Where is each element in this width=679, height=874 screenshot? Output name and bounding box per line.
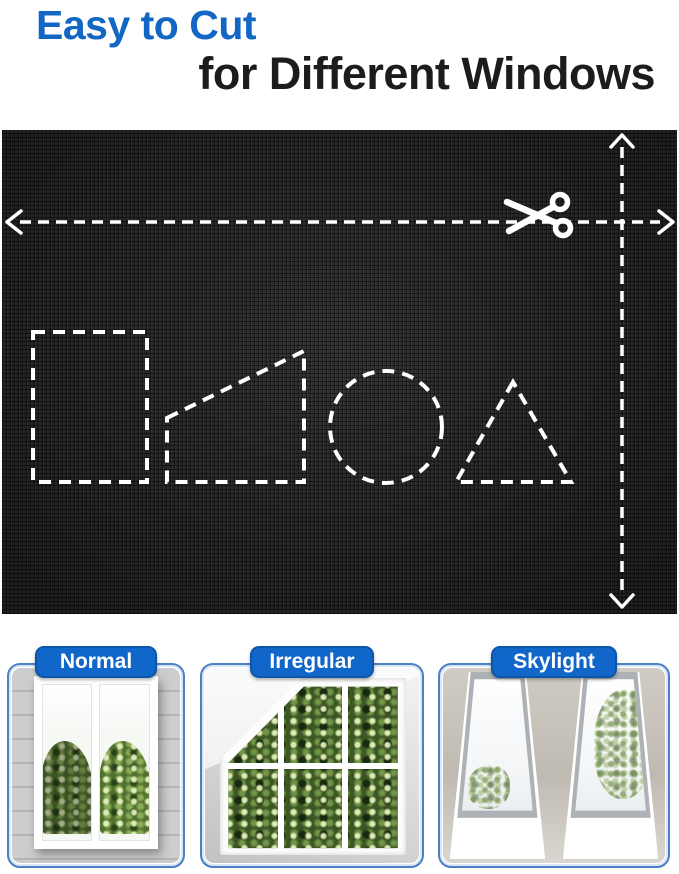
skylight-left [450, 672, 545, 859]
title-line-2: for Different Windows [198, 48, 655, 100]
skylight-window-photo [443, 668, 665, 863]
window-pane [99, 684, 150, 842]
label-irregular-text: Irregular [269, 650, 354, 674]
window-pane [42, 684, 93, 842]
title-line-1: Easy to Cut [36, 2, 256, 49]
cut-shape-triangle [456, 382, 571, 482]
down-arrow-icon [611, 595, 633, 607]
window-pane [348, 678, 406, 764]
product-infographic: Easy to Cut for Different Windows [0, 0, 679, 874]
window-pane [220, 769, 278, 855]
casement-window [34, 676, 158, 850]
example-card-skylight [438, 663, 670, 868]
window-pane [284, 678, 342, 764]
blackout-fabric-panel [2, 130, 677, 614]
example-card-normal [7, 663, 185, 868]
skylight-right [563, 672, 658, 859]
label-skylight: Skylight [491, 646, 617, 678]
cut-shape-rectangle [33, 332, 147, 482]
window-pane [284, 769, 342, 855]
example-card-irregular [200, 663, 424, 868]
normal-window-photo [12, 668, 180, 863]
up-arrow-icon [611, 135, 633, 147]
irregular-window-photo [205, 668, 419, 863]
label-skylight-text: Skylight [513, 650, 595, 674]
cut-shape-circle [330, 371, 442, 483]
cut-guides-overlay [2, 130, 677, 614]
window-pane [348, 769, 406, 855]
right-arrow-icon [659, 211, 673, 233]
label-irregular: Irregular [250, 646, 374, 678]
scissors-icon [507, 195, 571, 236]
left-arrow-icon [7, 211, 21, 233]
label-normal-text: Normal [60, 650, 132, 674]
label-normal: Normal [35, 646, 157, 678]
cut-shape-trapezoid [167, 351, 304, 482]
